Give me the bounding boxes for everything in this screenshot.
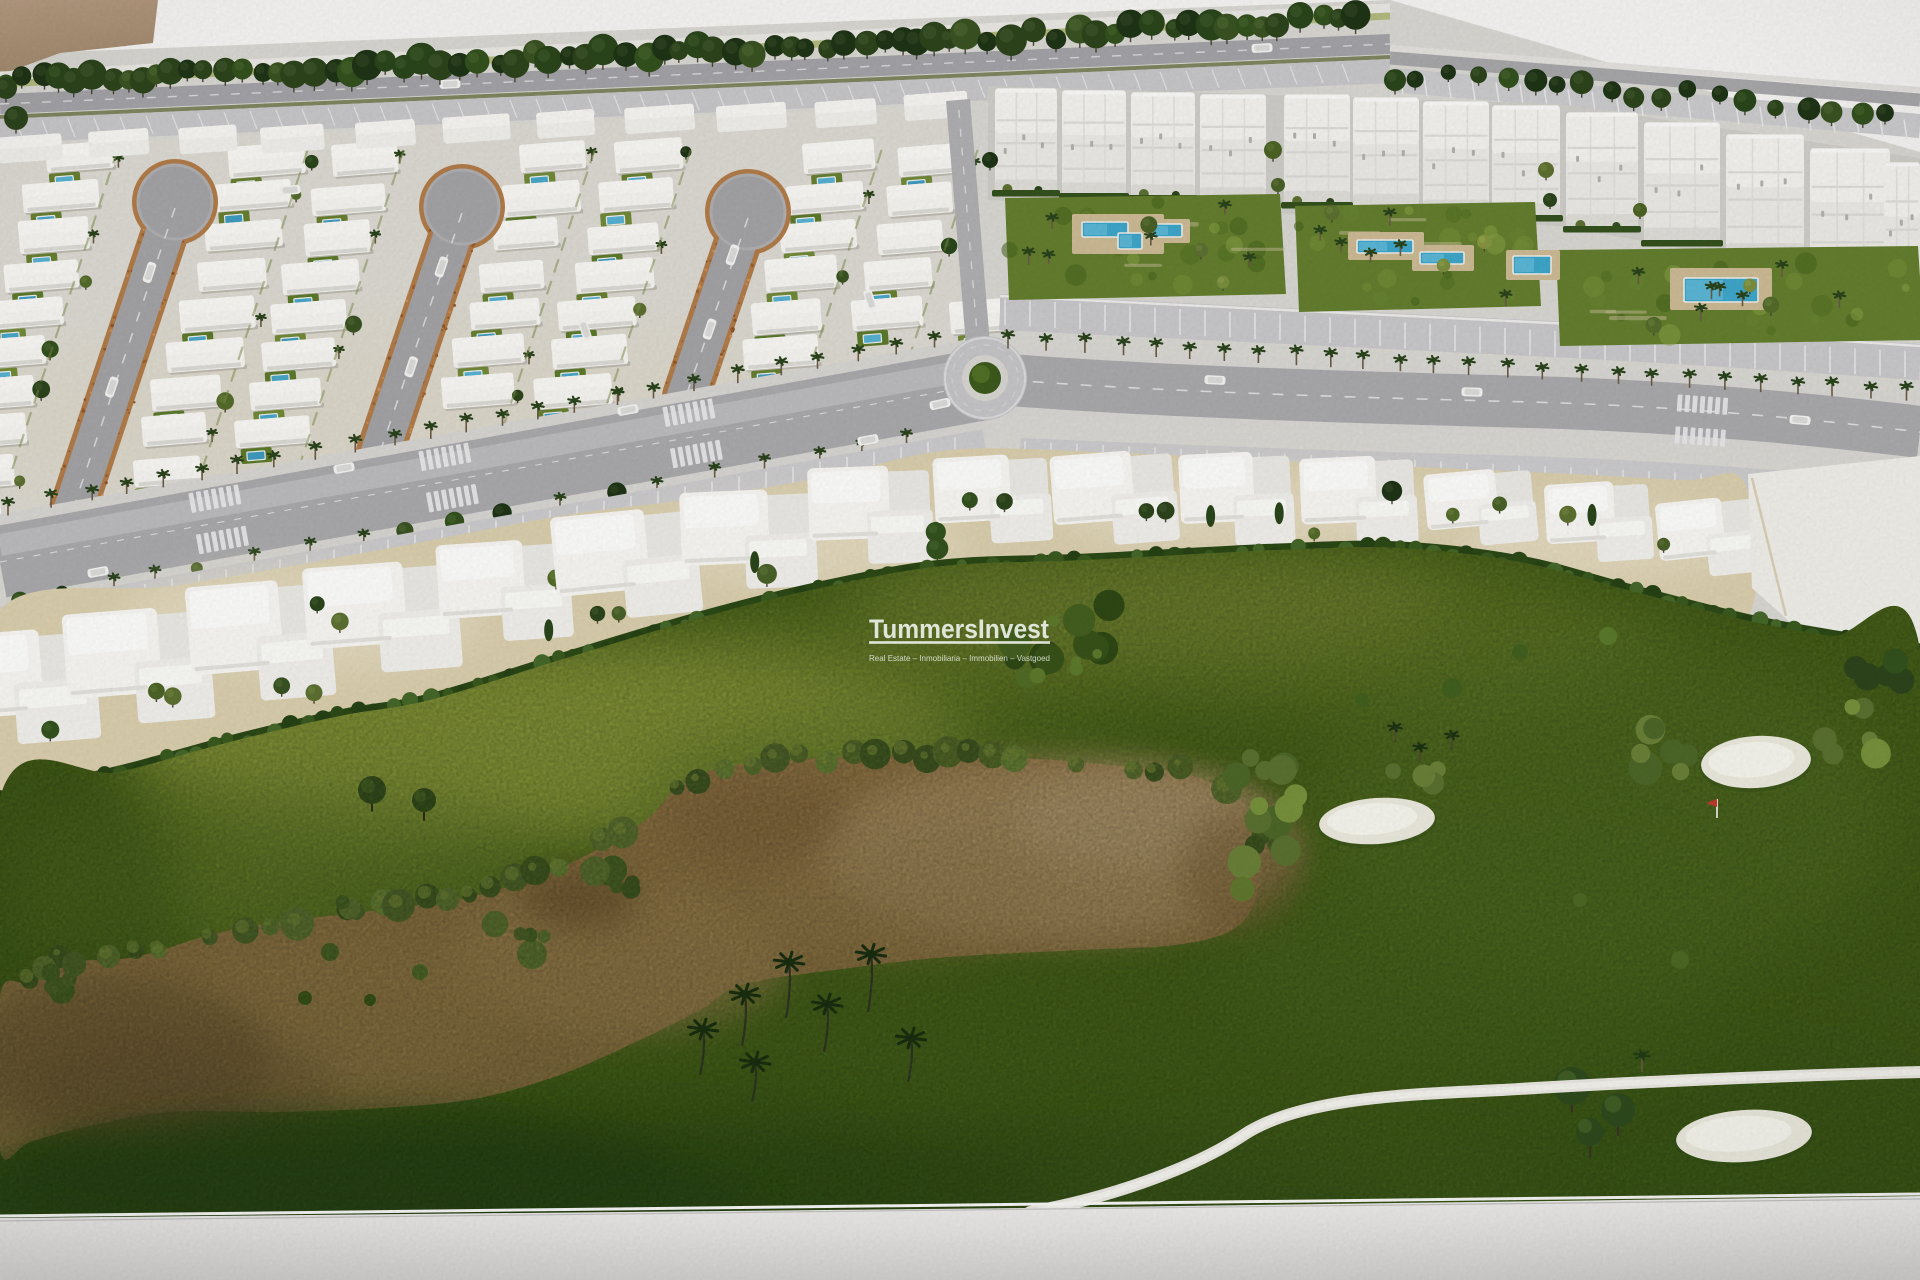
svg-text:Real Estate – Inmobiliaria – I: Real Estate – Inmobiliaria – Immobilien … xyxy=(869,653,1050,663)
svg-text:TummersInvest: TummersInvest xyxy=(869,614,1049,644)
